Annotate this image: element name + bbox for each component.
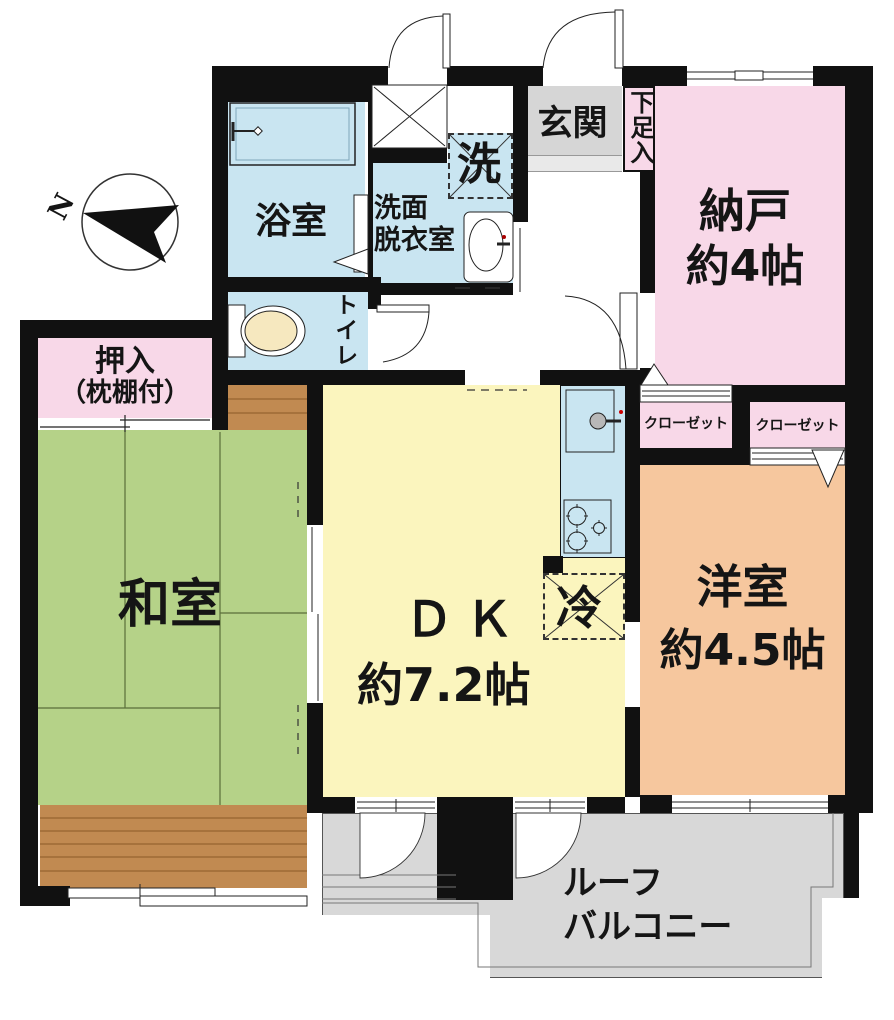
wall [625, 707, 640, 797]
wall [20, 320, 38, 906]
wall [307, 703, 323, 805]
wall [844, 813, 859, 898]
japanese-dk-slider [307, 525, 323, 703]
toilet-label: トイレ [330, 293, 356, 368]
wall [732, 402, 750, 448]
shoe-cabinet-label: 下足入 [626, 90, 653, 165]
futon-closet-label-line2: （枕棚付） [38, 379, 212, 408]
veranda [40, 805, 307, 888]
wall [543, 556, 563, 573]
wall [372, 283, 513, 295]
dk-label: ＤＫ [405, 594, 525, 648]
wall [640, 795, 672, 813]
compass-icon [82, 174, 179, 270]
wall [622, 66, 687, 86]
closet-left-label: クローゼット [640, 417, 732, 433]
storage-room-label: 納戸 [655, 186, 835, 238]
wall [540, 370, 655, 385]
toilet-door-arc [377, 305, 429, 362]
entrance-step [523, 155, 622, 172]
wall [640, 368, 655, 385]
wall [640, 172, 655, 293]
washroom-label-line1: 洗面 [374, 194, 428, 224]
wall [828, 795, 845, 813]
wall [845, 66, 873, 813]
wall [628, 448, 750, 465]
refrigerator-label: 冷 [556, 583, 602, 635]
entrance-label: 玄関 [523, 105, 622, 144]
roof-balcony-label-line1: ルーフ [563, 864, 663, 902]
wall [437, 797, 513, 900]
compass-north-label: N [43, 189, 81, 225]
storage-room-size: 約4帖 [655, 242, 835, 291]
wall [307, 385, 323, 525]
wall [20, 320, 212, 338]
roof-balcony-label-line2: バルコニー [563, 908, 732, 946]
western-room-size: 約4.5帖 [640, 626, 845, 675]
wood-strip [228, 385, 307, 430]
room-bathroom [228, 100, 365, 277]
wall [372, 148, 447, 163]
washroom-label-line2: 脱衣室 [374, 226, 455, 256]
floor-plan: N 浴室 洗面 脱衣室 洗 玄関 下足入 納戸 約4帖 トイレ 押入 （枕棚付）… [0, 0, 894, 1020]
closet-left-slider [640, 385, 732, 402]
wall [368, 100, 373, 277]
window-lines-western [672, 799, 828, 812]
storage-door-arc [565, 293, 637, 369]
bathroom-label: 浴室 [255, 202, 327, 242]
wall [368, 277, 381, 309]
futon-closet-label-line1: 押入 [38, 345, 212, 379]
washer-label: 洗 [457, 140, 501, 189]
wall [20, 886, 70, 906]
wall [212, 370, 465, 385]
japanese-room-label: 和室 [118, 576, 222, 634]
western-room-label: 洋室 [640, 562, 845, 614]
closet-right-label: クローゼット [750, 419, 845, 435]
wall [213, 66, 388, 86]
wall [625, 385, 640, 622]
wall [447, 66, 543, 86]
kitchen-counter [560, 385, 627, 558]
dk-size: 約7.2帖 [357, 660, 531, 712]
window-lines-storage [687, 71, 813, 80]
entrance-door-arc [543, 10, 623, 68]
room-washroom-right [448, 199, 513, 295]
wall [213, 86, 372, 102]
wall [587, 797, 625, 813]
service-door-arc [389, 14, 450, 68]
wall [228, 277, 368, 292]
pipe-space-icon [372, 85, 447, 148]
washroom-door [513, 222, 528, 295]
